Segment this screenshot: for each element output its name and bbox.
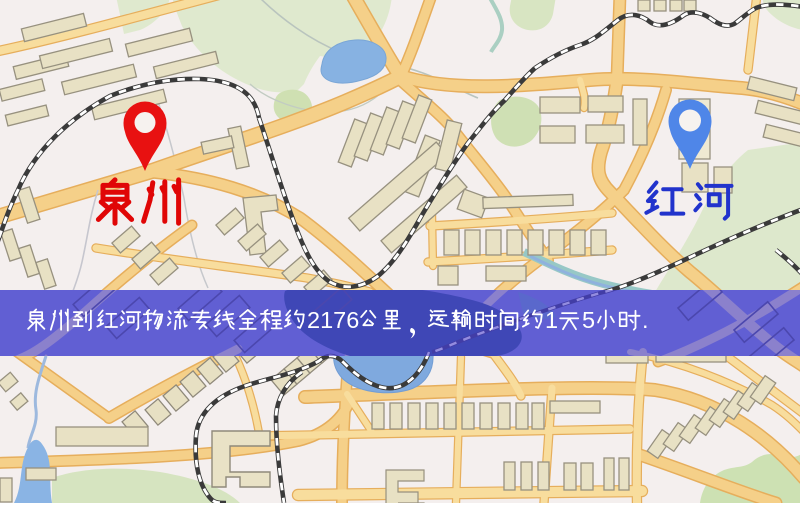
svg-text:5: 5 [582, 307, 595, 333]
svg-text:2176: 2176 [307, 307, 359, 333]
svg-text:1: 1 [545, 307, 558, 333]
svg-text:.: . [642, 307, 649, 333]
